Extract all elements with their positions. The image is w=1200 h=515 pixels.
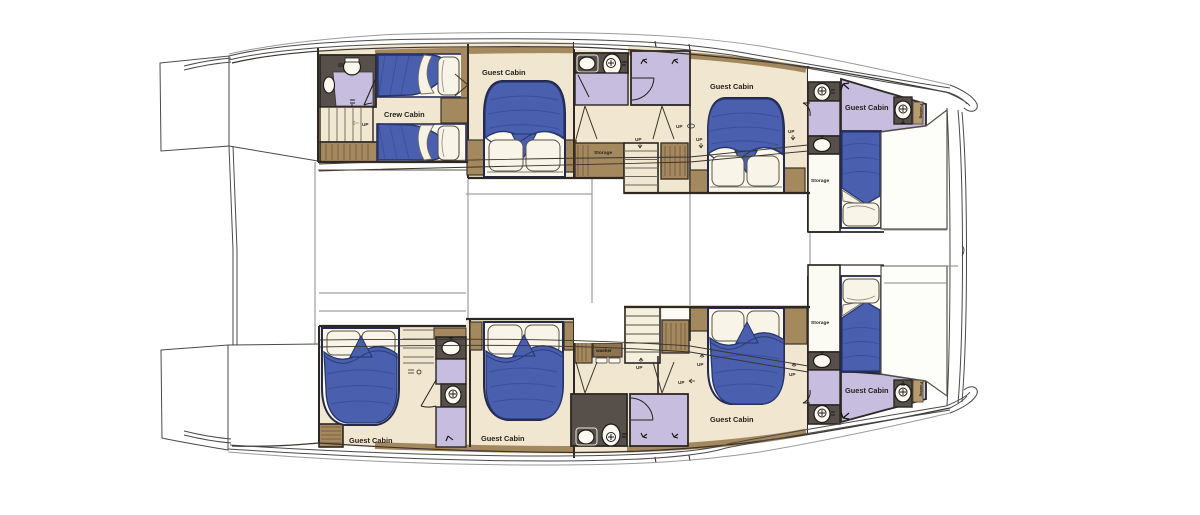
- svg-text:UP: UP: [789, 372, 796, 377]
- svg-text:UP: UP: [788, 129, 795, 134]
- svg-text:Folding: Folding: [919, 104, 924, 119]
- svg-text:washer: washer: [595, 348, 612, 353]
- svg-text:Folding: Folding: [919, 382, 924, 397]
- svg-text:Storage: Storage: [811, 178, 829, 184]
- svg-text:UP: UP: [697, 362, 704, 367]
- svg-text:Guest Cabin: Guest Cabin: [710, 415, 754, 424]
- svg-text:UP: UP: [676, 124, 683, 129]
- svg-text:Guest Cabin: Guest Cabin: [845, 386, 889, 395]
- svg-text:Guest Cabin: Guest Cabin: [349, 436, 393, 445]
- svg-text:UP: UP: [362, 122, 369, 127]
- svg-text:Crew Cabin: Crew Cabin: [384, 110, 425, 119]
- svg-text:UP: UP: [635, 137, 642, 142]
- svg-text:Guest Cabin: Guest Cabin: [482, 68, 526, 77]
- svg-text:UP: UP: [636, 365, 643, 370]
- svg-text:UP: UP: [696, 137, 703, 142]
- svg-text:Storage: Storage: [594, 150, 612, 156]
- svg-text:UP: UP: [678, 380, 685, 385]
- svg-text:Guest Cabin: Guest Cabin: [481, 434, 525, 443]
- svg-text:Guest Cabin: Guest Cabin: [710, 82, 754, 91]
- svg-text:Guest Cabin: Guest Cabin: [845, 103, 889, 112]
- svg-text:Storage: Storage: [811, 320, 829, 326]
